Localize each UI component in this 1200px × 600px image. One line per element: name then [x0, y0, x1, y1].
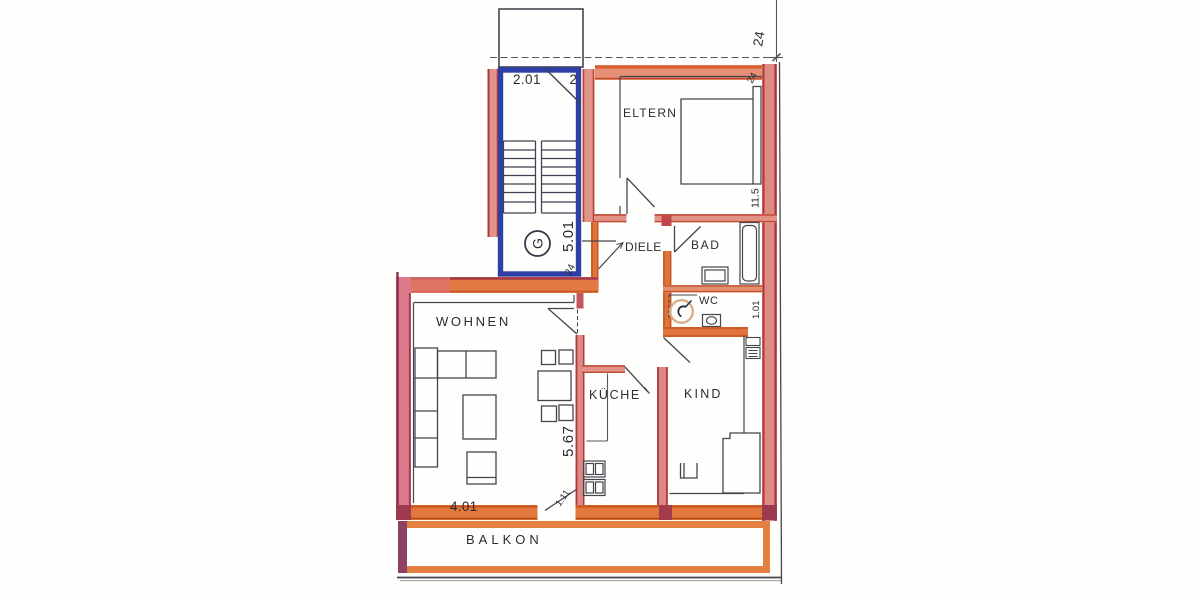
svg-text:5.01: 5.01: [560, 220, 577, 252]
svg-text:BAD: BAD: [691, 238, 720, 252]
svg-text:WC: WC: [699, 295, 719, 307]
svg-text:G: G: [530, 238, 546, 249]
svg-text:2: 2: [570, 72, 578, 87]
svg-text:DIELE: DIELE: [625, 240, 662, 254]
svg-text:5.67: 5.67: [560, 425, 577, 457]
svg-text:1.01: 1.01: [751, 301, 762, 320]
svg-text:ELTERN: ELTERN: [623, 106, 677, 120]
svg-text:KIND: KIND: [684, 387, 723, 401]
svg-text:24: 24: [750, 30, 767, 48]
svg-text:11.5: 11.5: [750, 188, 762, 208]
svg-text:4.01: 4.01: [450, 499, 477, 514]
svg-text:KÜCHE: KÜCHE: [589, 388, 641, 402]
svg-text:WOHNEN: WOHNEN: [436, 314, 511, 329]
svg-text:BALKON: BALKON: [466, 532, 543, 547]
svg-text:2.01: 2.01: [513, 72, 541, 87]
